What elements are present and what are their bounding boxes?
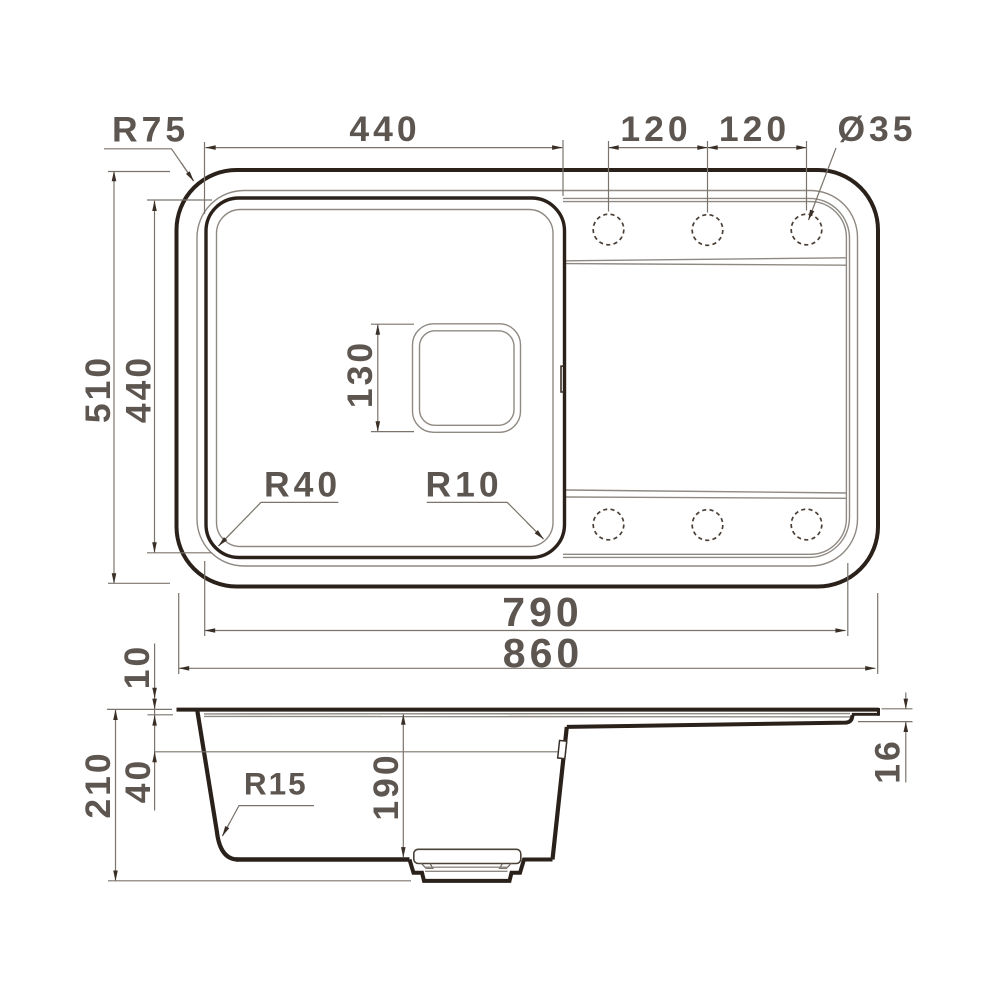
svg-text:210: 210 — [78, 750, 118, 818]
svg-text:190: 190 — [366, 752, 406, 820]
svg-text:Ø35: Ø35 — [837, 109, 916, 149]
svg-text:120: 120 — [719, 109, 790, 149]
svg-text:440: 440 — [119, 355, 159, 423]
svg-text:R15: R15 — [244, 766, 308, 802]
svg-text:R75: R75 — [112, 110, 189, 150]
svg-text:10: 10 — [117, 644, 157, 690]
svg-text:R40: R40 — [264, 465, 341, 505]
svg-text:790: 790 — [502, 589, 582, 635]
svg-text:130: 130 — [340, 340, 380, 408]
svg-text:R10: R10 — [425, 465, 502, 505]
svg-text:440: 440 — [349, 109, 420, 149]
svg-text:16: 16 — [868, 738, 908, 784]
svg-text:510: 510 — [78, 355, 118, 423]
svg-text:40: 40 — [118, 758, 158, 804]
svg-text:860: 860 — [503, 630, 583, 676]
svg-text:120: 120 — [620, 109, 691, 149]
